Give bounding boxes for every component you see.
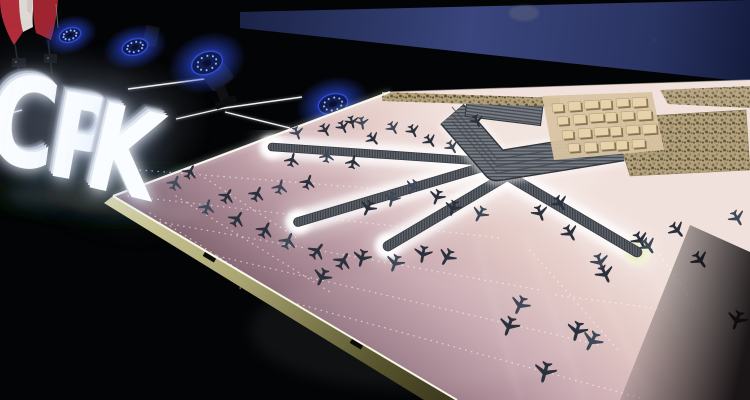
building-block [616, 98, 629, 107]
building-block [626, 125, 639, 134]
building-block [632, 97, 647, 107]
building-block [632, 139, 645, 148]
building-block [578, 128, 591, 138]
bokeh-speck [699, 54, 701, 56]
building-block [642, 124, 657, 134]
screen-smudge [509, 5, 539, 21]
building-block [621, 111, 634, 120]
flagpole-clamp-left [12, 58, 26, 67]
building-block [600, 141, 615, 150]
clamp-dot [47, 57, 49, 59]
building-block [616, 140, 628, 150]
building-block [562, 130, 574, 139]
bokeh-speck [654, 39, 656, 41]
building-block [557, 116, 569, 125]
building-block [568, 101, 581, 111]
building-block [605, 112, 617, 122]
building-block [568, 143, 580, 152]
flagpole-clamp-right [44, 54, 57, 63]
scene-canvas [0, 0, 750, 400]
photo-cpk-model-presentation: C P K [0, 0, 750, 400]
building-block [573, 114, 586, 124]
building-block [552, 103, 564, 112]
building-block [584, 142, 597, 152]
building-block [600, 99, 612, 109]
building-block [637, 110, 652, 120]
reflection [142, 205, 202, 221]
building-block [610, 126, 622, 136]
surface-sheen [250, 270, 590, 390]
building-block [589, 113, 604, 122]
clamp-dot [15, 61, 17, 63]
building-block [594, 127, 609, 136]
building-block [584, 100, 599, 109]
